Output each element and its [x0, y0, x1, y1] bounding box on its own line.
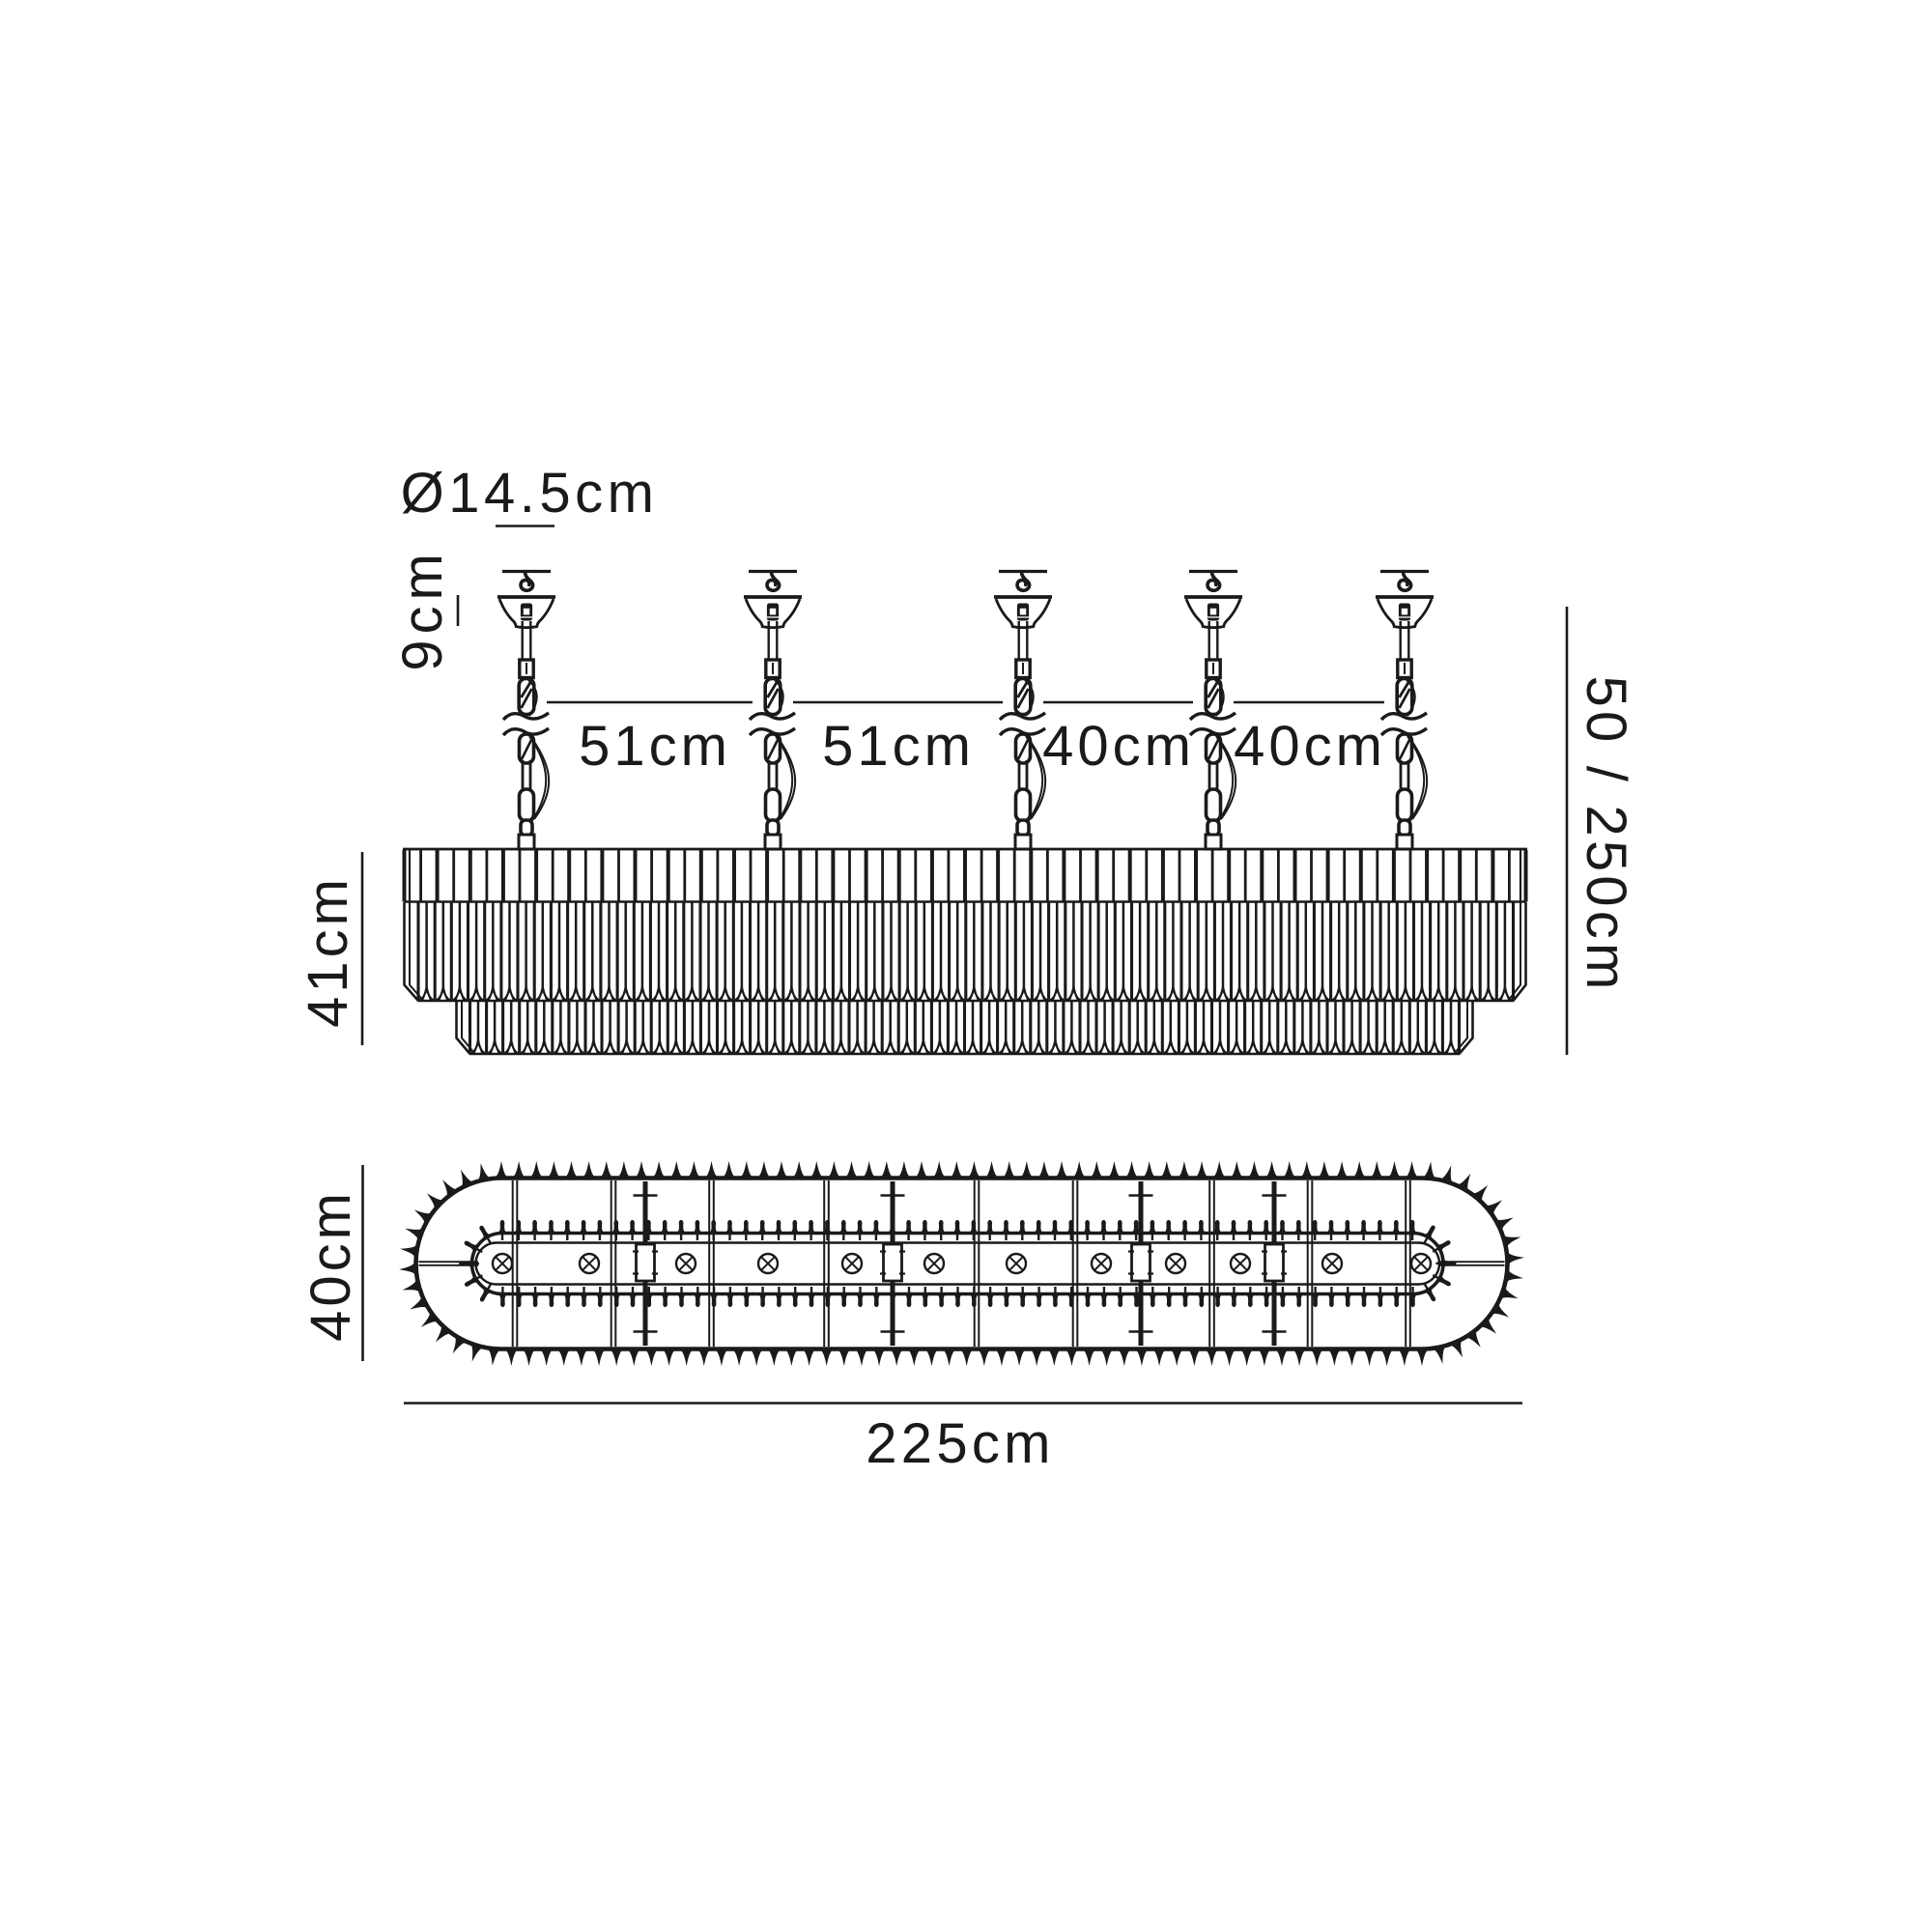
svg-text:51cm: 51cm	[579, 715, 731, 778]
svg-text:50 / 250cm: 50 / 250cm	[1575, 676, 1637, 994]
svg-text:225cm: 225cm	[866, 1412, 1055, 1475]
svg-text:41cm: 41cm	[297, 875, 359, 1028]
svg-text:40cm: 40cm	[1042, 715, 1195, 778]
svg-text:40cm: 40cm	[299, 1189, 362, 1342]
svg-text:Ø14.5cm: Ø14.5cm	[401, 462, 659, 525]
svg-text:40cm: 40cm	[1234, 715, 1386, 778]
svg-text:9cm: 9cm	[391, 548, 454, 671]
svg-text:51cm: 51cm	[822, 715, 975, 778]
